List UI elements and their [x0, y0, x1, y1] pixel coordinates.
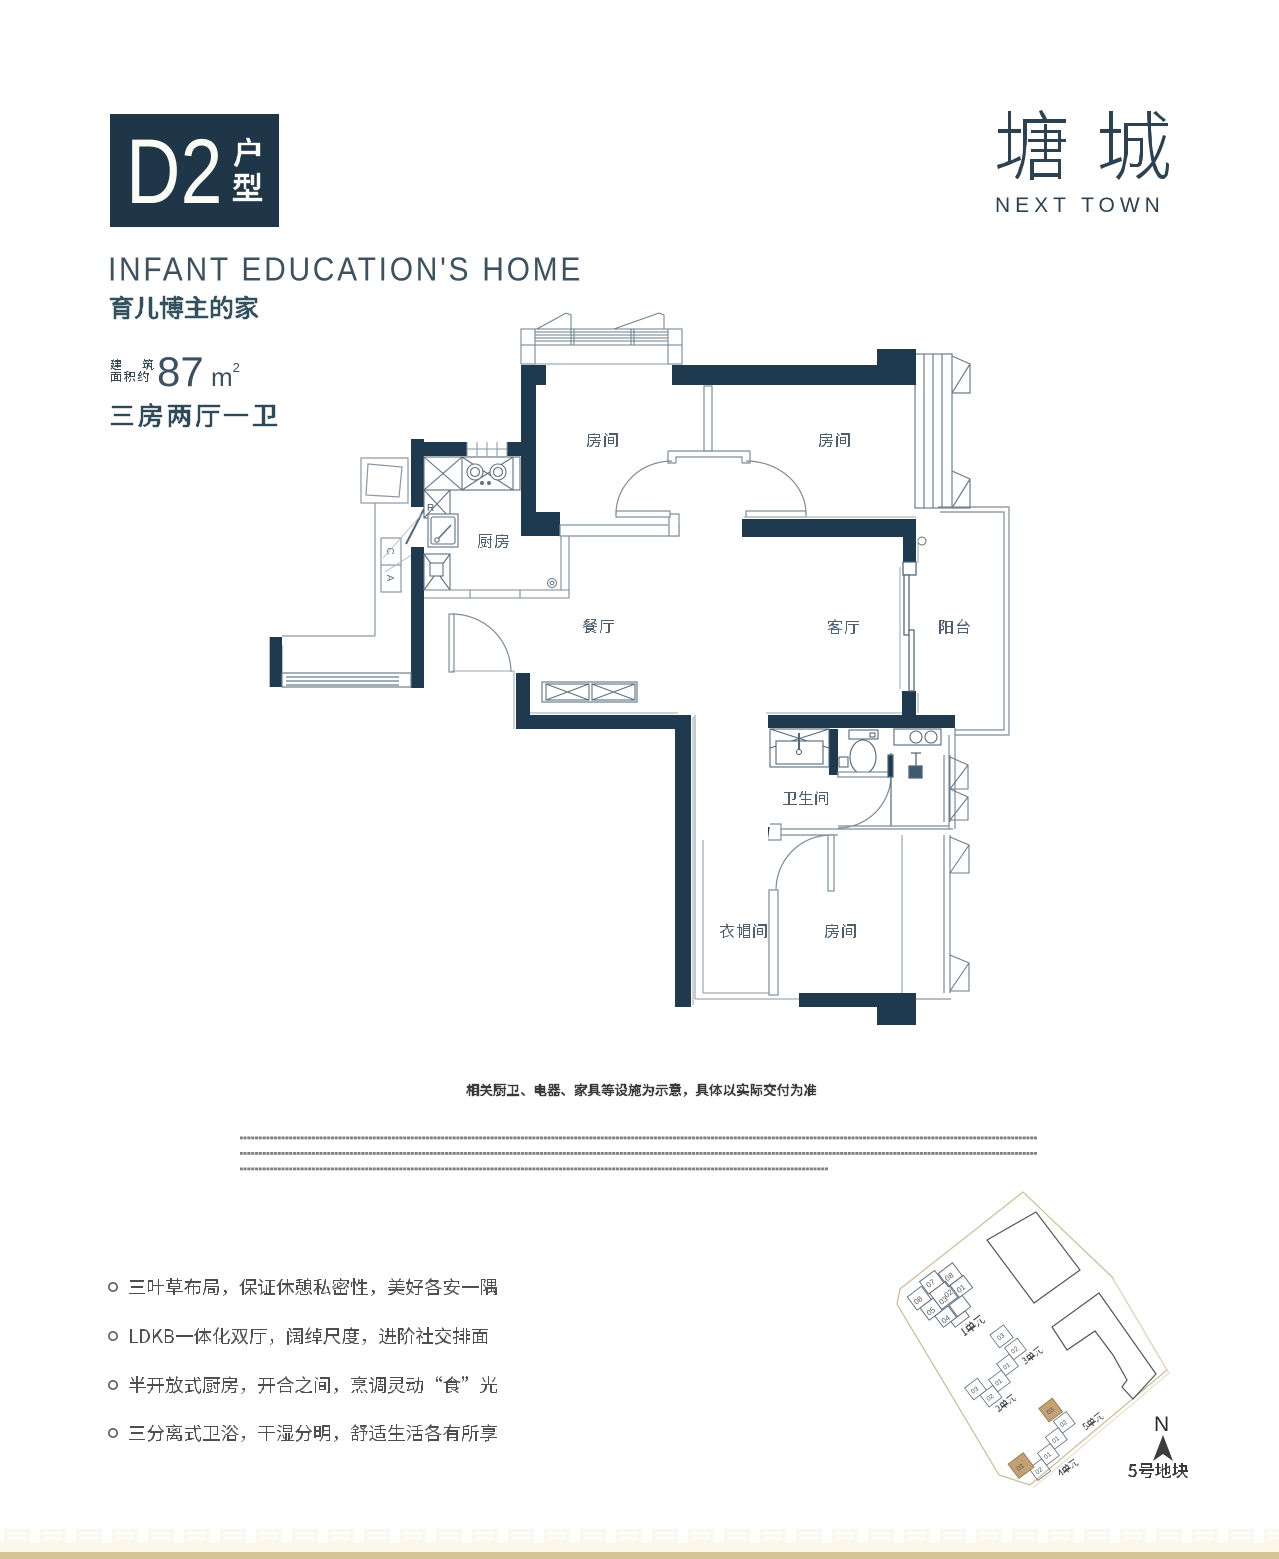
svg-text:07: 07: [924, 1277, 936, 1289]
svg-text:01: 01: [1002, 1361, 1012, 1371]
svg-text:02: 02: [1010, 1345, 1020, 1355]
svg-text:02: 02: [1059, 1419, 1069, 1429]
svg-text:02: 02: [985, 1393, 995, 1403]
svg-text:01: 01: [1043, 1451, 1053, 1461]
svg-text:A: A: [384, 575, 395, 582]
svg-text:03: 03: [996, 1332, 1006, 1342]
svg-text:01: 01: [1051, 1435, 1061, 1445]
svg-text:01: 01: [994, 1377, 1004, 1387]
svg-text:03: 03: [970, 1385, 980, 1395]
svg-text:R: R: [427, 503, 434, 514]
svg-text:04: 04: [940, 1313, 953, 1326]
svg-text:08: 08: [912, 1294, 924, 1306]
